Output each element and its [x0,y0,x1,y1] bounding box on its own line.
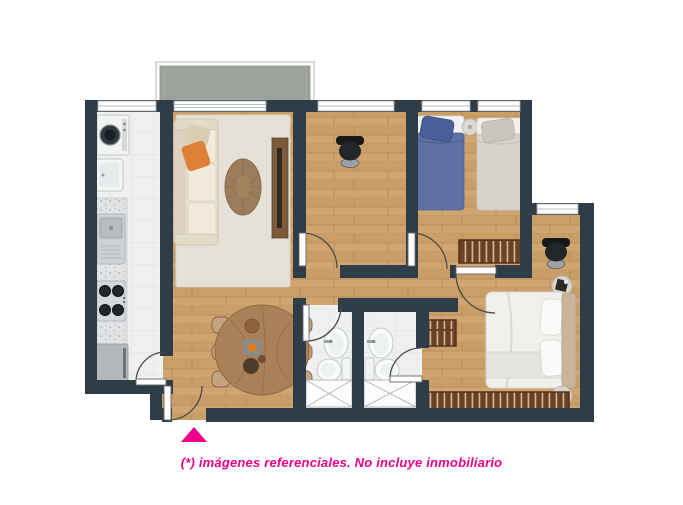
kitchen-sink [97,214,125,264]
pillow-beige [481,118,516,143]
wall-outer-left [85,100,97,392]
window-bedroom2-a [422,101,470,111]
pillow [540,339,563,376]
washing-machine [97,115,129,155]
stove [97,281,125,321]
bath1-sink [324,328,348,358]
window-balcony-slider [174,101,266,111]
sofa [174,119,218,245]
window-laundry [98,101,156,111]
single-bed-beige [477,118,524,210]
laundry-tub [95,159,123,191]
bath1-shower [306,380,352,407]
wall-bedroom2-bottom-a [450,265,456,278]
wall-study-bottom-a [293,265,306,278]
window-main-bedroom [537,204,578,214]
window-study [318,101,394,111]
kitchen [95,198,128,382]
headboard [562,293,576,388]
pillow [540,298,563,335]
wall-bedroom2-bottom-b [495,265,532,278]
bath1-toilet [317,358,351,382]
wall-kitchen-divider [160,100,173,356]
wall-foyer-left [150,394,162,420]
wall-bedroom2-right [520,100,532,278]
window-bedroom2-b [478,101,520,111]
floorplan-page: (*) imágenes referenciales. No incluye i… [0,0,683,505]
single-bed-blue [417,115,464,210]
wall-outer-right [580,203,594,422]
fridge [95,344,128,382]
coffee-table [225,159,261,215]
floorplan-drawing [0,0,683,448]
wall-bath2-right-b [416,380,429,416]
living-room [174,115,290,287]
entrance-marker-triangle [181,427,207,442]
disclaimer-caption: (*) imágenes referenciales. No incluye i… [0,455,683,470]
wall-bottom-b [206,408,594,422]
wall-bath2-right-a [416,298,429,348]
table-vase [245,319,259,333]
tv-console [272,138,288,238]
table-plate [243,358,259,374]
bath2-shower [364,380,416,407]
wall-study-bottom-b [340,265,406,278]
wall-bath-divider [352,298,364,416]
double-bed [486,292,576,388]
closet-bench [459,240,527,263]
